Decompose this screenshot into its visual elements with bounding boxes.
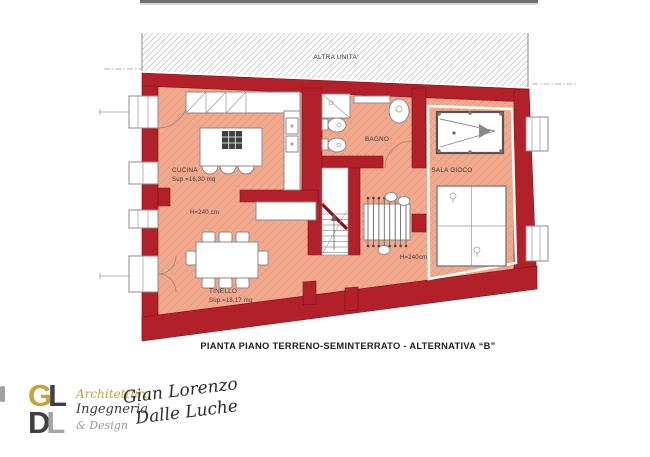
chair-bottom-1 (202, 278, 215, 288)
cucina-area-label: Sup.=16,30 mq (172, 177, 215, 183)
bagno-label: BAGNO (365, 136, 389, 143)
wall-left-pier (158, 188, 170, 206)
logo-monogram: GL DL (28, 382, 63, 436)
seat-3 (378, 246, 390, 255)
seat-2 (398, 197, 410, 206)
billiard-ball (452, 131, 455, 134)
billiard-top (437, 112, 503, 153)
chair-right (258, 251, 268, 265)
chair-left (186, 251, 196, 265)
wall-stair-right (348, 168, 360, 255)
window-right-1 (526, 117, 548, 151)
billiard-table (437, 111, 503, 154)
window-left-2 (129, 162, 158, 184)
toilet-tank (322, 119, 328, 130)
dim-line-window2 (100, 273, 129, 279)
tinello-label: TINELLO (209, 288, 237, 295)
stair-shaft (322, 168, 348, 255)
cucina-height-label: H=240 cm (190, 210, 219, 216)
dining-table (196, 242, 258, 278)
bathroom-shelf (354, 96, 390, 103)
seat-1 (385, 193, 397, 202)
window-right-2 (526, 226, 548, 261)
chair-top-2 (219, 232, 232, 242)
chair-top-1 (202, 232, 215, 242)
tinello-area-label: Sup.=18,17 mq (209, 298, 252, 304)
cucina-label: CUCINA (172, 167, 198, 174)
bidet-base (322, 139, 328, 150)
sala-gioco-height-label: H=240cm (400, 255, 427, 261)
sala-gioco-label: SALA GIOCO (431, 167, 472, 174)
chair-bottom-3 (236, 278, 249, 288)
chair-bottom-2 (219, 278, 232, 288)
wall-bottom-stub-1 (303, 281, 316, 305)
cooktop (222, 131, 242, 149)
window-left-1 (129, 96, 158, 128)
wall-bottom-stub-2 (345, 287, 358, 311)
plan-caption: PIANTA PIANO TERRENO-SEMINTERRATO - ALTE… (200, 341, 495, 351)
wall-cucina-bagno (302, 88, 322, 202)
foosball-body (364, 204, 410, 240)
sideboard (256, 202, 316, 220)
adjacent-unit-label: ALTRA UNITA' (313, 54, 358, 61)
window-left-3 (129, 210, 158, 228)
staircase (322, 168, 348, 255)
wall-bagno-sala (412, 88, 426, 168)
french-door-left (129, 256, 158, 292)
wall-bagno-bottom (322, 156, 383, 168)
scanned-floor-plan-page: ALTRA UNITA' (0, 0, 650, 457)
washbasin (389, 99, 409, 123)
chair-top-3 (236, 232, 249, 242)
monogram-letter-l2: L (46, 405, 61, 440)
monogram-letter-d: D (28, 405, 46, 440)
ping-pong-table (437, 186, 506, 266)
wall-pier-sala (412, 214, 426, 232)
studio-logo: GL DL Architettura Ingegneria & Design G… (28, 382, 228, 454)
wall-cucina-tinello (240, 190, 318, 202)
dim-line-window1 (100, 109, 129, 115)
architect-signature: Gian Lorenzo Dalle Luche (122, 373, 242, 431)
